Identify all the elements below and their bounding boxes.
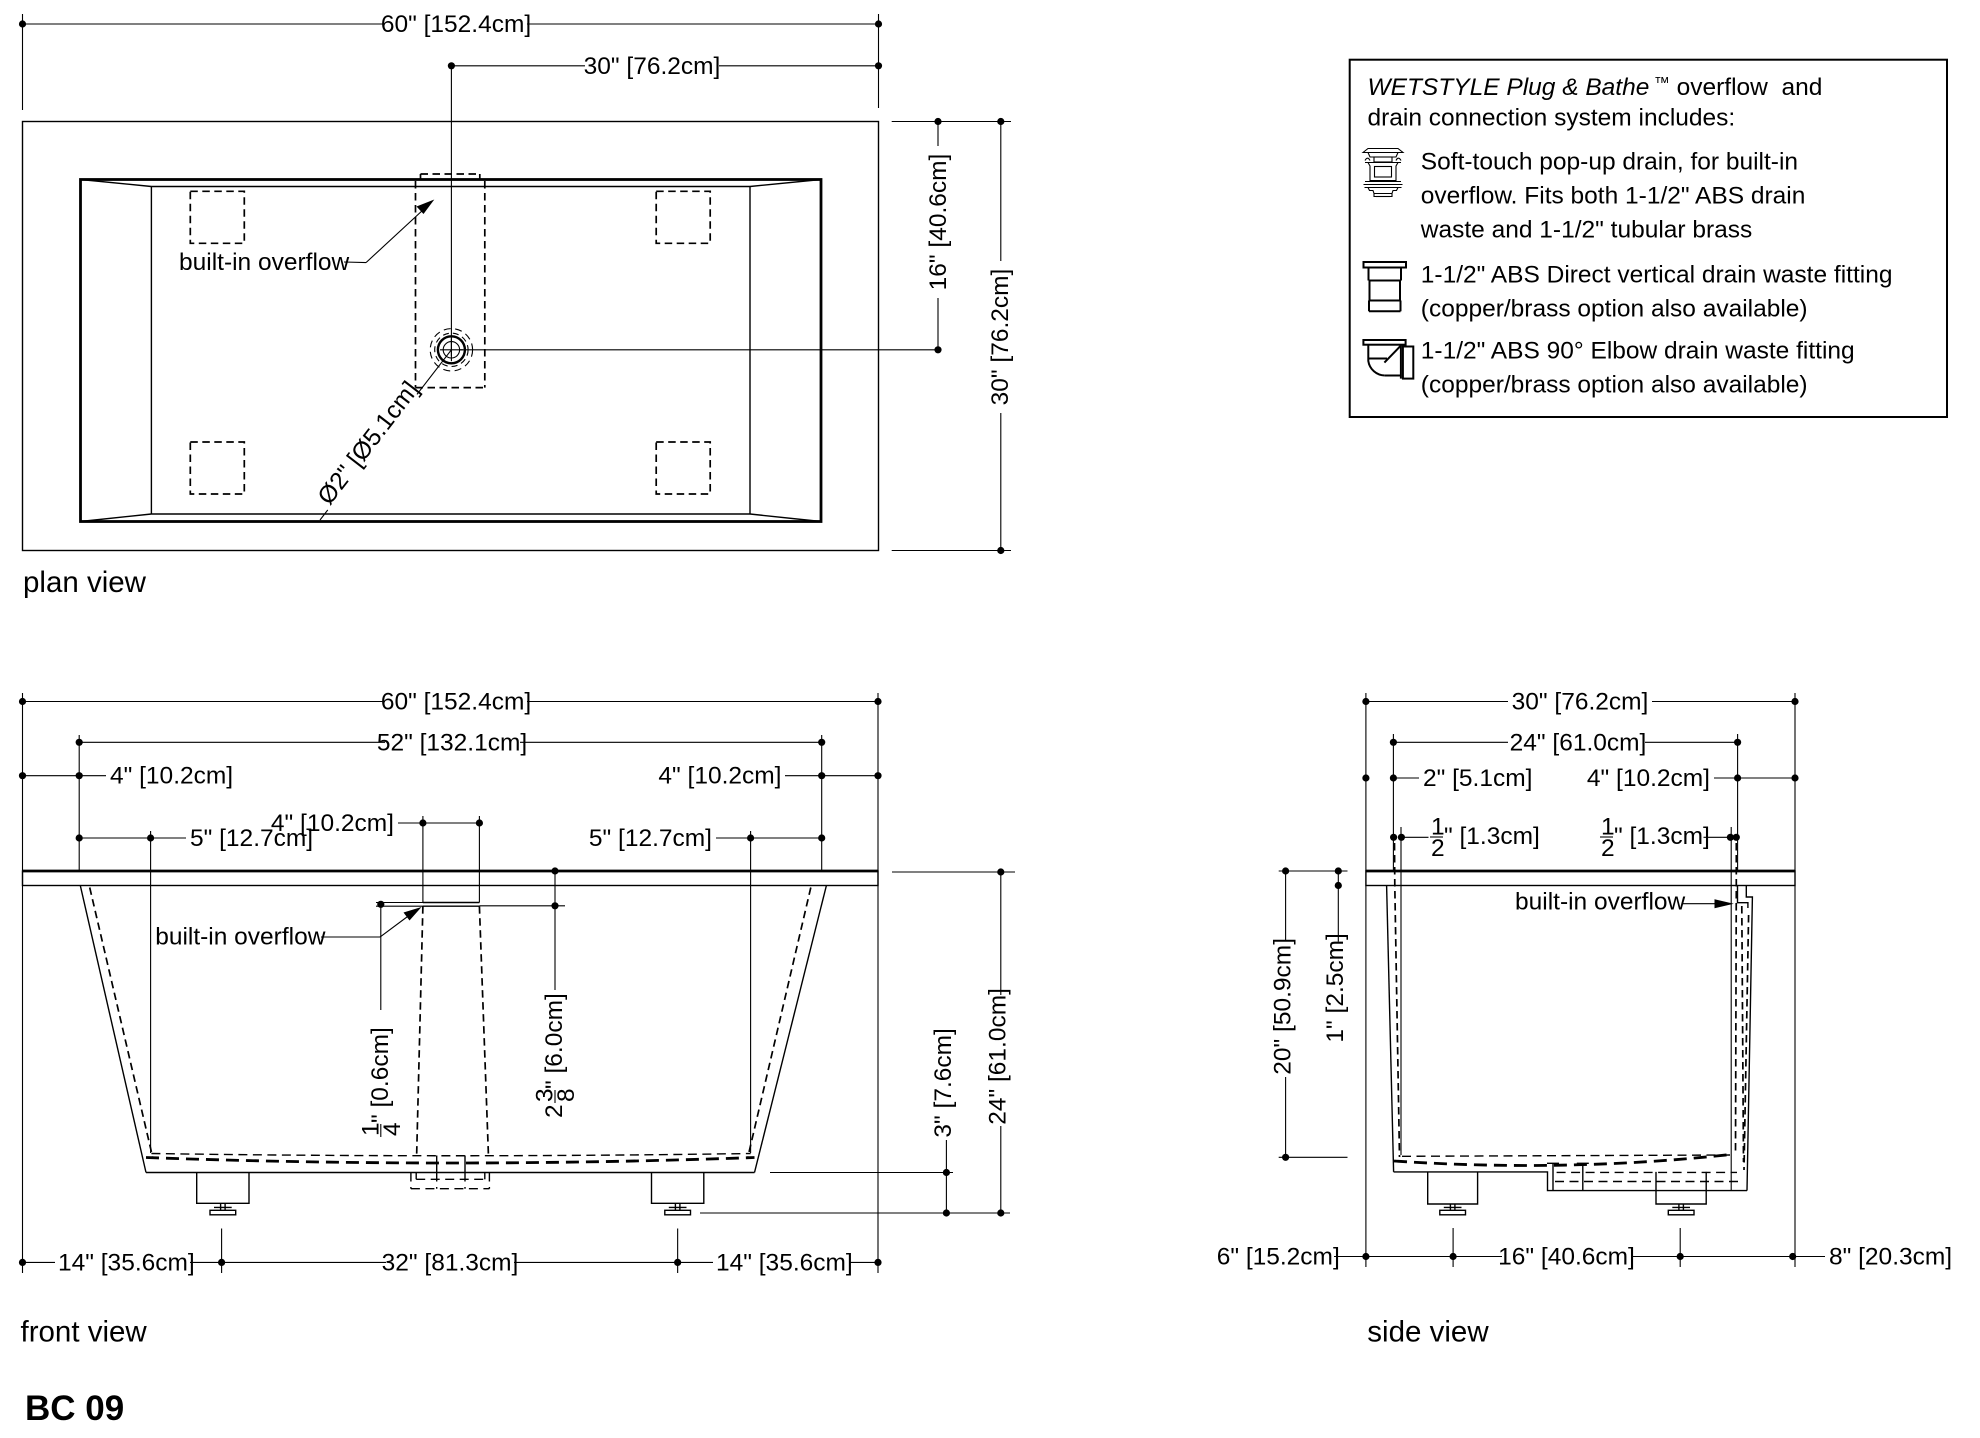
svg-text:side view: side view — [1367, 1316, 1489, 1349]
svg-text:waste and 1-1/2" tubular brass: waste and 1-1/2" tubular brass — [1420, 216, 1752, 243]
svg-text:Soft-touch pop-up drain, for b: Soft-touch pop-up drain, for built-in — [1421, 149, 1798, 176]
svg-text:30" [76.2cm]: 30" [76.2cm] — [987, 269, 1014, 406]
svg-text:14" [35.6cm]: 14" [35.6cm] — [58, 1249, 195, 1276]
svg-text:4" [10.2cm]: 4" [10.2cm] — [110, 763, 233, 790]
svg-text:1-1/2" ABS 90° Elbow drain was: 1-1/2" ABS 90° Elbow drain waste fitting — [1421, 338, 1855, 365]
svg-text:52" [132.1cm]: 52" [132.1cm] — [377, 729, 527, 756]
svg-text:8: 8 — [553, 1088, 580, 1102]
svg-text:16" [40.6cm]: 16" [40.6cm] — [1498, 1244, 1635, 1271]
svg-text:16" [40.6cm]: 16" [40.6cm] — [925, 154, 952, 291]
svg-text:plan view: plan view — [23, 566, 147, 599]
svg-text:" [1.3cm]: " [1.3cm] — [1614, 823, 1710, 850]
svg-text:" [6.0cm]: " [6.0cm] — [541, 993, 568, 1089]
svg-text:5" [12.7cm]: 5" [12.7cm] — [589, 825, 712, 852]
svg-text:14" [35.6cm]: 14" [35.6cm] — [716, 1249, 853, 1276]
svg-text:6" [15.2cm]: 6" [15.2cm] — [1217, 1244, 1340, 1271]
svg-text:1-1/2" ABS Direct vertical dra: 1-1/2" ABS Direct vertical drain waste f… — [1421, 262, 1893, 289]
svg-text:built-in overflow: built-in overflow — [179, 249, 350, 276]
svg-text:(copper/brass option also avai: (copper/brass option also available) — [1421, 296, 1808, 323]
svg-text:built-in overflow: built-in overflow — [1515, 889, 1686, 916]
svg-text:20" [50.9cm]: 20" [50.9cm] — [1269, 938, 1296, 1075]
svg-text:built-in overflow: built-in overflow — [155, 923, 326, 950]
svg-text:BC 09: BC 09 — [25, 1389, 124, 1428]
svg-text:4" [10.2cm]: 4" [10.2cm] — [271, 810, 394, 837]
svg-text:24" [61.0cm]: 24" [61.0cm] — [985, 988, 1012, 1125]
svg-text:drain connection system includ: drain connection system includes: — [1368, 104, 1736, 131]
svg-text:WETSTYLE Plug & Bathe ™ overfl: WETSTYLE Plug & Bathe ™ overflow and — [1368, 74, 1823, 101]
svg-text:60" [152.4cm]: 60" [152.4cm] — [381, 11, 531, 38]
svg-text:4: 4 — [379, 1122, 406, 1136]
svg-text:24" [61.0cm]: 24" [61.0cm] — [1510, 729, 1647, 756]
svg-text:2: 2 — [1601, 835, 1615, 862]
svg-text:32" [81.3cm]: 32" [81.3cm] — [382, 1249, 519, 1276]
svg-text:overflow. Fits both 1-1/2" ABS: overflow. Fits both 1-1/2" ABS drain — [1421, 183, 1806, 210]
svg-text:8" [20.3cm]: 8" [20.3cm] — [1829, 1244, 1952, 1271]
svg-text:2" [5.1cm]: 2" [5.1cm] — [1423, 765, 1532, 792]
svg-text:4" [10.2cm]: 4" [10.2cm] — [658, 763, 781, 790]
svg-text:3" [7.6cm]: 3" [7.6cm] — [930, 1028, 957, 1137]
svg-text:2: 2 — [1431, 835, 1445, 862]
svg-text:" [1.3cm]: " [1.3cm] — [1444, 823, 1540, 850]
svg-text:" [0.6cm]: " [0.6cm] — [367, 1027, 394, 1123]
svg-text:2: 2 — [541, 1104, 568, 1118]
svg-text:4" [10.2cm]: 4" [10.2cm] — [1587, 765, 1710, 792]
svg-text:30" [76.2cm]: 30" [76.2cm] — [584, 53, 721, 80]
svg-text:front view: front view — [21, 1316, 148, 1349]
svg-text:1" [2.5cm]: 1" [2.5cm] — [1322, 933, 1349, 1042]
svg-text:60" [152.4cm]: 60" [152.4cm] — [381, 689, 531, 716]
svg-text:30" [76.2cm]: 30" [76.2cm] — [1512, 689, 1649, 716]
svg-text:(copper/brass option also avai: (copper/brass option also available) — [1421, 372, 1808, 399]
